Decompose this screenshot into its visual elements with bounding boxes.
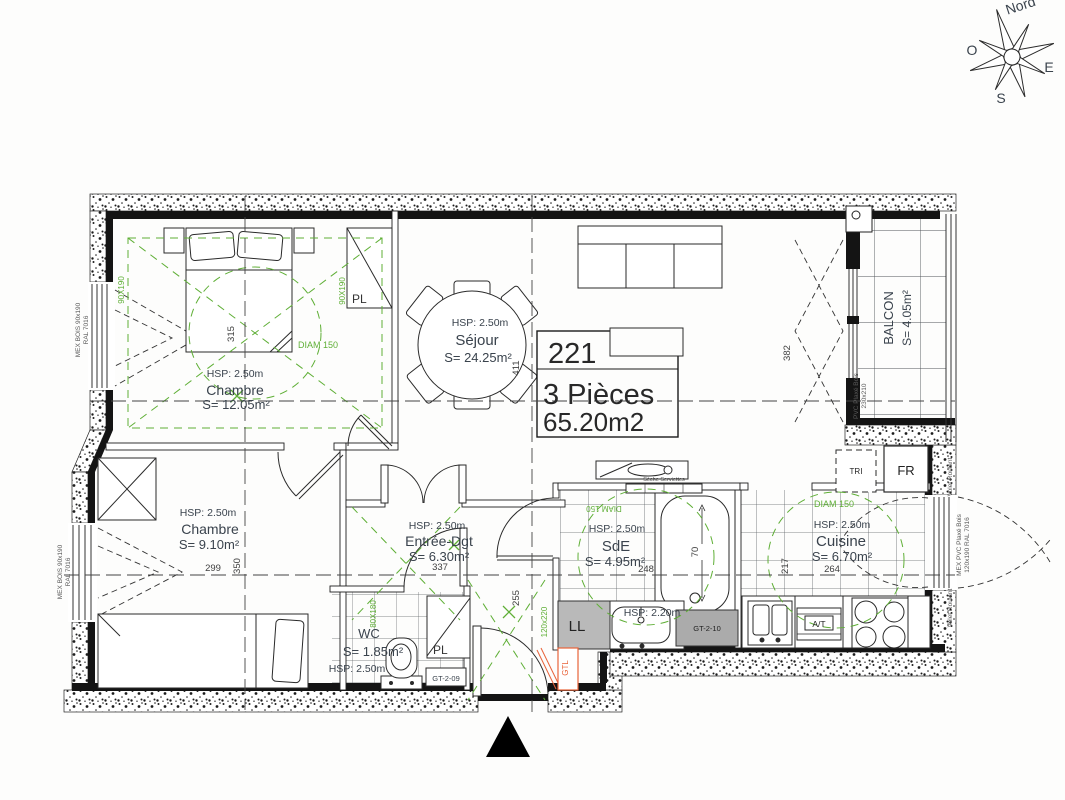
wc-size-note: 80X180 <box>369 600 378 628</box>
entree-dim-337: 337 <box>432 562 448 573</box>
window1-spec-type: MEX BOIS 90x190 <box>75 302 82 357</box>
balcony-door-size: 230x210 <box>861 383 868 408</box>
window-chambre2 <box>68 523 182 622</box>
pl-size-90x190: 90X190 <box>338 277 347 305</box>
chambre1-pl-label: PL <box>352 292 367 306</box>
cooktop <box>852 598 908 648</box>
towel-dryer-label: Sèche Serviettes <box>643 477 685 483</box>
bed-chambre2 <box>98 614 308 688</box>
entree-dim-255: 255 <box>511 590 522 606</box>
bed-chambre1 <box>164 228 314 352</box>
pillow <box>272 619 304 683</box>
window2-spec-type: MEX BOIS 90x190 <box>57 544 64 599</box>
compass-west-label: O <box>967 42 978 58</box>
floorplan-canvas: Nord O E S 221 3 Pièces 65.20m2 HSP: 2.5… <box>0 0 1065 800</box>
compass-east-label: E <box>1044 59 1053 75</box>
shutter-label-bottom: Volet Roulant <box>947 588 954 627</box>
sejour-name: Séjour <box>455 332 498 349</box>
cuisine-name: Cuisine <box>816 533 866 550</box>
sink-unit-label: A/T <box>812 619 825 629</box>
entree-name: Entrée-Dgt <box>405 533 473 549</box>
wc-pl-label: PL <box>433 643 448 657</box>
sde-name: SdE <box>602 538 630 555</box>
sofa <box>578 226 722 288</box>
cuisine-dim-264: 264 <box>824 564 840 575</box>
chambre1-diam150: DIAM 150 <box>298 340 338 350</box>
sejour-hsp: HSP: 2.50m <box>452 317 509 329</box>
nightstand <box>294 228 314 253</box>
entree-hsp: HSP: 2.50m <box>409 520 466 532</box>
sejour-dim-382: 382 <box>782 345 793 361</box>
shutter-label-top: Volet Roulant <box>947 457 954 496</box>
washer-label: LL <box>569 618 586 635</box>
wc-area: S= 1.85m² <box>343 644 404 659</box>
door-gtl <box>537 648 560 689</box>
balcony-railing <box>946 214 956 442</box>
sde-area: S= 4.95m² <box>585 554 646 569</box>
sde-diam150: DIAM 150 <box>586 504 622 513</box>
entrance-door-size: 120x220 <box>540 606 549 637</box>
gt-2-10-label: GT-2-10 <box>693 624 721 633</box>
chambre2-hsp: HSP: 2.50m <box>180 507 237 519</box>
cuisine-diam150: DIAM 150 <box>814 499 854 509</box>
fridge-label: FR <box>897 463 914 478</box>
balcon-name: BALCON <box>881 291 896 344</box>
tri-label: TRI <box>850 467 863 476</box>
chambre1-name: Chambre <box>206 382 264 398</box>
window3-spec-size: 120x190 RAL 7016 <box>964 517 971 573</box>
kitchen-sink <box>748 601 792 645</box>
cuisine-area: S= 6.70m² <box>812 549 873 564</box>
gt-2-09-label: GT-2-09 <box>432 674 460 683</box>
sejour-dim-411: 411 <box>511 360 522 375</box>
window1-spec-color: RAL 7016 <box>83 315 90 344</box>
chambre2-dim-299: 299 <box>205 563 221 574</box>
wc-hsp: HSP: 2.50m <box>329 663 386 675</box>
cuisine-hsp: HSP: 2.50m <box>814 519 871 531</box>
chambre2-name: Chambre <box>181 521 239 537</box>
sde-hsp: HSP: 2.50m <box>589 523 646 535</box>
balcon-area: S= 4.05m² <box>900 290 914 346</box>
coffee-table <box>610 328 683 356</box>
pillow <box>189 231 235 261</box>
chambre1-hsp: HSP: 2.50m <box>207 368 264 380</box>
balcony-pillar <box>846 206 872 232</box>
chambre1-area: S= 12.05m² <box>202 397 270 412</box>
cuisine-dim-217: 217 <box>780 558 791 574</box>
compass-north-label: Nord <box>1004 0 1038 18</box>
pillow <box>237 231 283 261</box>
sde-dim-248: 248 <box>638 564 654 575</box>
nightstand <box>164 228 184 253</box>
window2-spec-color: RAL 7016 <box>65 557 72 586</box>
unit-number: 221 <box>548 338 596 370</box>
tub-dim-70: 70 <box>690 547 701 558</box>
chambre1-dim-315: 315 <box>226 326 237 342</box>
sde-soffit-hsp: HSP: 2.20m <box>624 607 681 619</box>
sejour-area: S= 24.25m² <box>444 350 512 365</box>
compass-south-label: S <box>996 90 1005 106</box>
window3-spec-type: MEX PVC Plaxé Bois <box>956 513 963 576</box>
door-entrance <box>473 626 548 696</box>
gtl-label: GTL <box>561 660 570 676</box>
window1-size-90x190: 90X190 <box>117 276 126 304</box>
balcony-door-type: PVC Plaxé Bois <box>853 372 860 419</box>
wardrobe-chambre2 <box>98 458 156 520</box>
door-chambre2 <box>278 452 343 499</box>
chambre2-area: S= 9.10m² <box>179 537 240 552</box>
door-double-sejour <box>381 465 466 503</box>
chambre2-dim-350: 350 <box>232 558 243 574</box>
window-chambre1 <box>88 282 198 390</box>
entrance-triangle-icon <box>486 716 530 757</box>
unit-area: 65.20m2 <box>543 407 644 437</box>
